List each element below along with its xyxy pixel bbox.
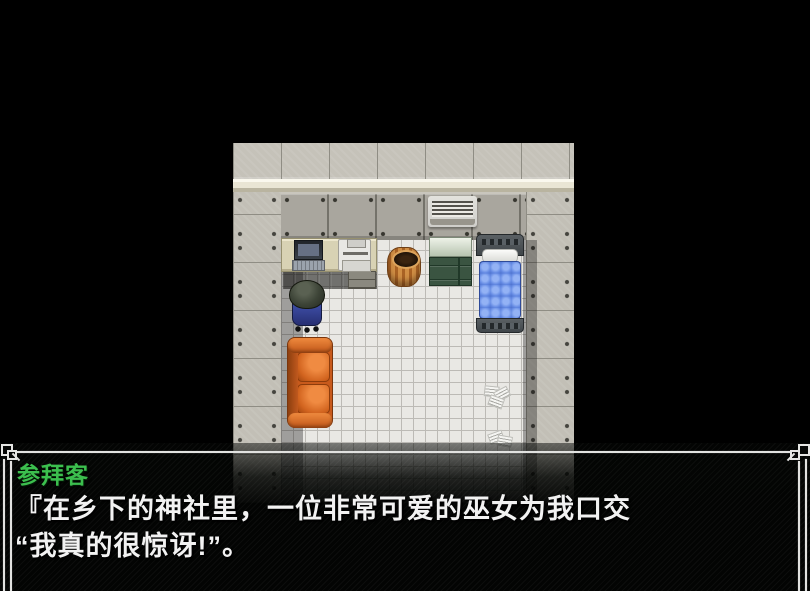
window-border-top [17,451,790,453]
character-on-chair [288,280,326,334]
bed [476,234,524,333]
dialogue-line-2: “我真的很惊讶!”。 [15,524,250,563]
printer-slot [343,252,368,255]
desk-drawer-unit [348,271,376,289]
window-corner-ornament-right [790,444,806,460]
game-screen: 参拜客 『在乡下的神社里，一位非常可爱的巫女为我口交 “我真的很惊讶!”。 [0,0,810,591]
ac-bottom-lip [430,219,475,225]
sofa-armrest-bottom [288,413,332,428]
scattered-papers-1 [481,381,517,413]
speaker-name: 参拜客 [17,456,89,490]
sofa-cushion-bottom [297,384,330,414]
window-border-left-outer [3,459,5,591]
cabinet-drawers [429,257,472,286]
sofa-armrest-top [288,338,332,353]
window-border-right-outer [805,459,807,591]
waste-basket [387,247,421,287]
headboard-slats [482,239,520,245]
orange-sofa [287,337,333,428]
window-border-right-inner [798,461,800,591]
dialogue-line-1: 『在乡下的神社里，一位非常可爱的巫女为我口交 [15,487,631,526]
ac-vent-slats [432,201,473,217]
air-conditioner [428,196,477,227]
wall-trim [233,179,574,192]
printer-feeder [347,239,366,248]
green-cabinet [429,237,472,286]
printer-tray [342,260,371,272]
laptop-keyboard [292,260,325,271]
stone-wall-top [233,143,574,179]
bed-footboard [476,318,524,333]
laptop [292,240,325,271]
cabinet-top [429,237,472,257]
printer [338,239,371,271]
laptop-screen [294,240,323,260]
footboard-slats [482,323,520,329]
window-corner-ornament-left [1,444,17,460]
sofa-cushion-top [297,352,330,382]
character-hair [289,280,325,309]
bed-blanket [479,261,521,319]
window-border-left-inner [10,461,12,591]
basket-opening [392,250,420,269]
message-window[interactable]: 参拜客 『在乡下的神社里，一位非常可爱的巫女为我口交 “我真的很惊讶!”。 [0,443,810,591]
metal-panel-wall [281,192,527,240]
